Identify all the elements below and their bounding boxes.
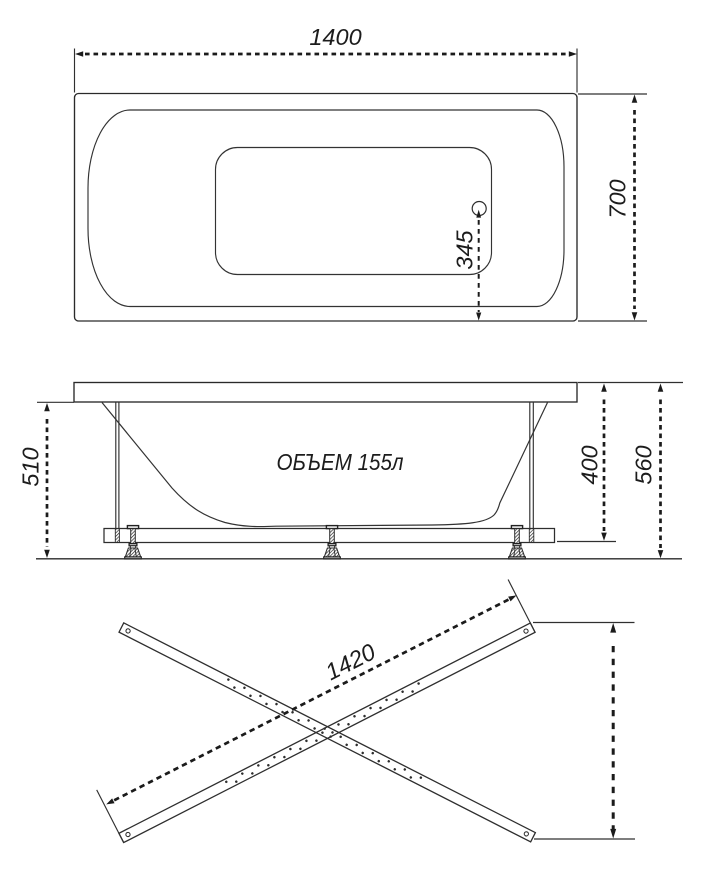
- svg-text:400: 400: [577, 445, 603, 484]
- svg-text:510: 510: [18, 447, 44, 486]
- svg-text:ОБЪЕМ 155л: ОБЪЕМ 155л: [277, 449, 404, 475]
- svg-text:1400: 1400: [309, 24, 361, 50]
- svg-text:700: 700: [605, 179, 631, 218]
- svg-text:345: 345: [452, 229, 478, 269]
- svg-text:560: 560: [631, 445, 657, 484]
